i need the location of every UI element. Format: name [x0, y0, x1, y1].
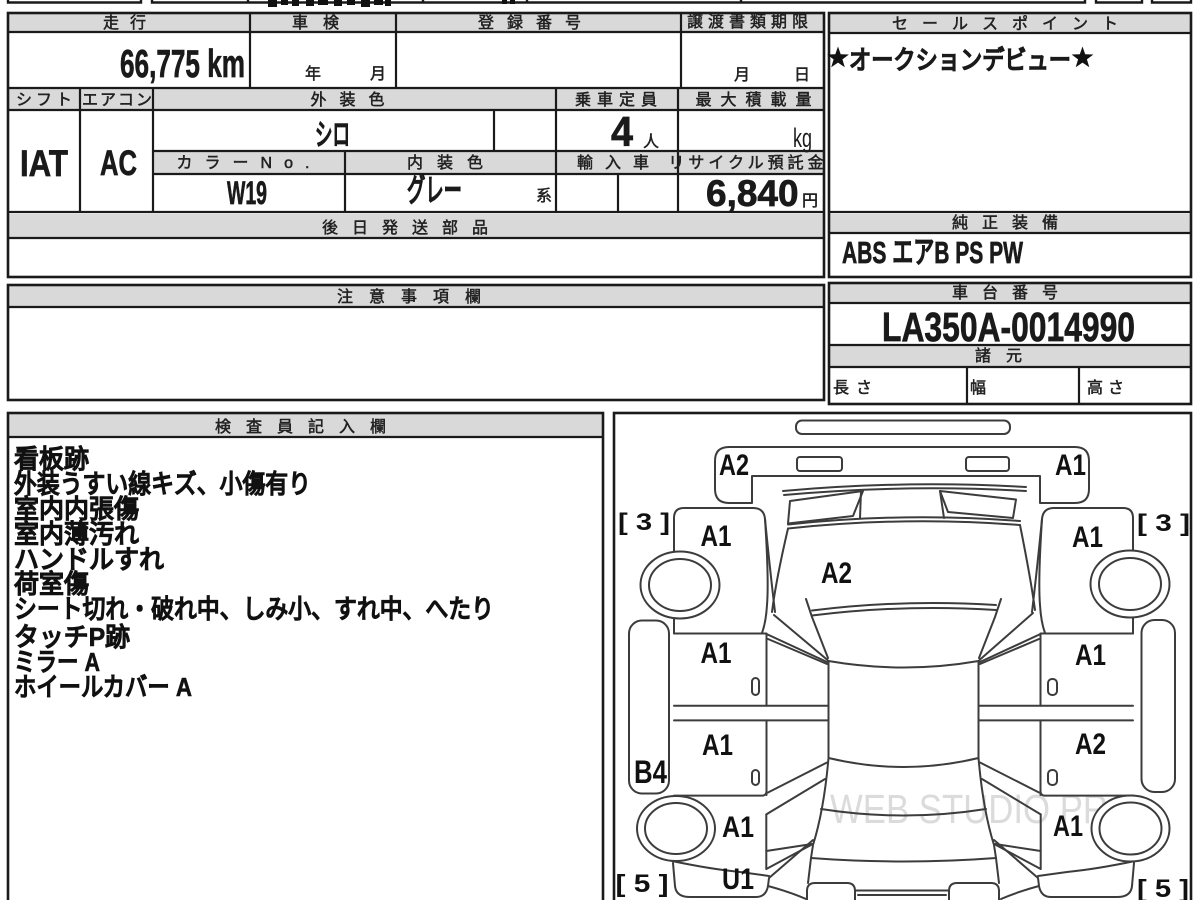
svg-text:幅: 幅 — [970, 379, 986, 397]
svg-text:グレー: グレー — [407, 172, 462, 208]
svg-text:検査員記入欄: 検査員記入欄 — [215, 418, 401, 436]
svg-text:車台番号: 車台番号 — [952, 284, 1072, 302]
svg-text:人: 人 — [643, 133, 659, 151]
svg-text:[ 3 ]: [ 3 ] — [618, 509, 670, 536]
svg-text:譲渡書類期限: 譲渡書類期限 — [687, 12, 813, 31]
svg-text:カラーNo.: カラーNo. — [177, 155, 322, 172]
svg-text:車検: 車検 — [292, 14, 354, 32]
svg-text:4: 4 — [611, 108, 634, 155]
svg-text:6,840: 6,840 — [706, 173, 799, 214]
svg-text:系: 系 — [536, 187, 552, 205]
svg-text:A2: A2 — [821, 557, 852, 590]
svg-text:[ 3 ]: [ 3 ] — [1137, 510, 1190, 537]
svg-text:A1: A1 — [701, 520, 732, 553]
svg-text:後日発送部品: 後日発送部品 — [322, 219, 502, 237]
svg-text:高さ: 高さ — [1087, 379, 1129, 397]
svg-text:A1: A1 — [1055, 449, 1086, 482]
svg-text:A1: A1 — [1075, 639, 1106, 672]
svg-text:登録番号: 登録番号 — [478, 14, 594, 32]
svg-text:外装色: 外装色 — [310, 91, 397, 109]
svg-text:輸入車: 輸入車 — [577, 154, 661, 172]
svg-text:ホイールカバー A: ホイールカバー A — [14, 672, 192, 702]
svg-text:セールスポイント: セールスポイント — [892, 15, 1132, 33]
svg-text:長さ: 長さ — [833, 379, 879, 397]
svg-text:円: 円 — [802, 193, 818, 210]
svg-text:[ 5 ]: [ 5 ] — [1137, 875, 1189, 900]
svg-text:A1: A1 — [1072, 521, 1103, 554]
svg-text:kg: kg — [793, 123, 812, 153]
svg-text:オークションデビュー: オークションデビュー — [849, 45, 1071, 75]
svg-text:A1: A1 — [1053, 810, 1083, 843]
svg-text:シフト: シフト — [16, 92, 76, 109]
svg-text:エアコン: エアコン — [82, 92, 154, 109]
svg-text:U1: U1 — [722, 863, 754, 896]
svg-text:シート切れ・破れ中、しみ小、すれ中、へたり: シート切れ・破れ中、しみ小、すれ中、へたり — [14, 594, 494, 624]
svg-text:乗車定員: 乗車定員 — [575, 91, 663, 109]
svg-text:注意事項欄: 注意事項欄 — [337, 287, 497, 306]
svg-text:年: 年 — [305, 65, 321, 83]
svg-text:A1: A1 — [722, 811, 754, 844]
svg-text:A2: A2 — [1075, 728, 1106, 761]
svg-text:[ 5 ]: [ 5 ] — [616, 870, 669, 898]
svg-text:B4: B4 — [634, 754, 667, 790]
svg-text:ABS エアB PS PW: ABS エアB PS PW — [842, 235, 1024, 270]
svg-text:純正装備: 純正装備 — [952, 214, 1072, 232]
svg-text:シロ: シロ — [315, 119, 350, 152]
svg-text:リサイクル預託金: リサイクル預託金 — [668, 154, 827, 172]
svg-text:月: 月 — [370, 66, 386, 83]
svg-text:月: 月 — [734, 67, 750, 84]
svg-text:日: 日 — [794, 67, 810, 84]
svg-text:AC: AC — [100, 144, 137, 183]
svg-text:A1: A1 — [701, 637, 732, 670]
svg-text:IAT: IAT — [20, 143, 68, 184]
svg-text:W19: W19 — [227, 175, 267, 211]
svg-text:A1: A1 — [702, 729, 733, 762]
svg-text:66,775 km: 66,775 km — [120, 43, 245, 86]
svg-text:諸元: 諸元 — [975, 347, 1037, 365]
svg-text:A2: A2 — [719, 449, 749, 482]
svg-text:最大積載量: 最大積載量 — [695, 91, 820, 109]
svg-text:内装色: 内装色 — [407, 154, 497, 172]
svg-text:走行: 走行 — [103, 14, 157, 32]
svg-text:LA350A-0014990: LA350A-0014990 — [882, 304, 1135, 350]
